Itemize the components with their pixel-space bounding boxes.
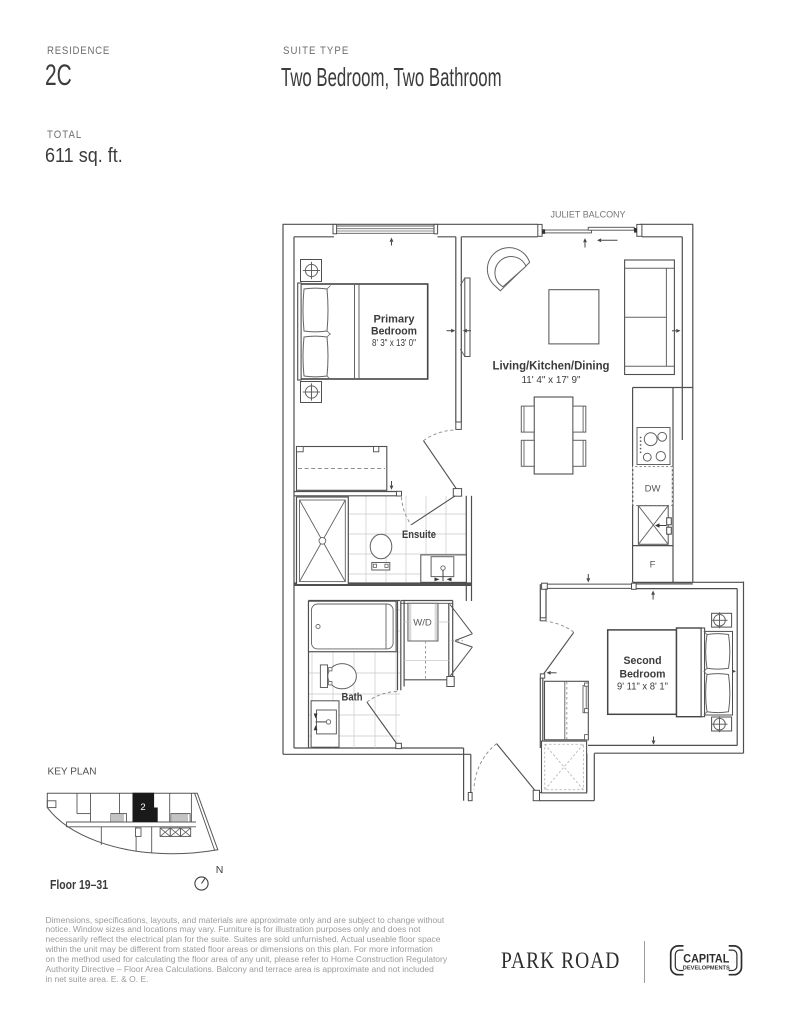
svg-text:DW: DW xyxy=(645,484,661,495)
svg-text:DEVELOPMENTS: DEVELOPMENTS xyxy=(683,966,730,972)
svg-text:Living/Kitchen/Dining: Living/Kitchen/Dining xyxy=(493,359,610,373)
svg-text:Bedroom: Bedroom xyxy=(371,326,417,338)
svg-text:11' 4" x 17' 9": 11' 4" x 17' 9" xyxy=(522,375,581,386)
svg-text:Primary: Primary xyxy=(374,314,416,326)
svg-text:Bedroom: Bedroom xyxy=(620,669,666,681)
svg-text:JULIET BALCONY: JULIET BALCONY xyxy=(551,210,626,220)
svg-text:CAPITAL: CAPITAL xyxy=(683,952,729,966)
svg-text:2: 2 xyxy=(140,802,145,813)
svg-text:Second: Second xyxy=(624,655,662,667)
svg-text:Bath: Bath xyxy=(342,692,363,704)
svg-text:W/D: W/D xyxy=(413,618,432,629)
svg-text:Ensuite: Ensuite xyxy=(402,529,436,541)
svg-text:9' 11" x 8' 1": 9' 11" x 8' 1" xyxy=(617,682,668,693)
svg-text:F: F xyxy=(650,560,656,571)
svg-text:N: N xyxy=(216,864,224,876)
svg-text:8' 3" x 13' 0": 8' 3" x 13' 0" xyxy=(372,338,416,349)
svg-text:Floor 19–31: Floor 19–31 xyxy=(50,878,108,892)
svg-text:KEY PLAN: KEY PLAN xyxy=(48,766,97,778)
